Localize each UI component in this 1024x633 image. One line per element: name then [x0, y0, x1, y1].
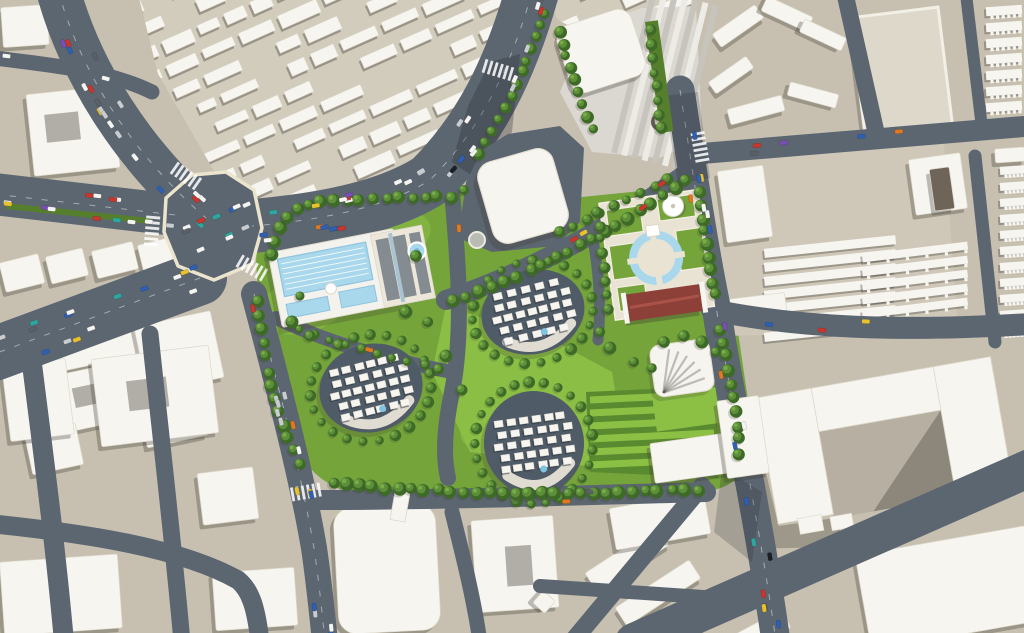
tree-highlight	[374, 351, 377, 354]
row-building	[1000, 213, 1024, 223]
tree-highlight	[528, 265, 532, 269]
fabric-building	[0, 81, 18, 99]
fabric-building	[582, 154, 621, 179]
tree-highlight	[488, 128, 491, 131]
tree-highlight	[257, 324, 261, 328]
car	[166, 223, 174, 228]
tree-highlight	[570, 75, 574, 79]
row-building-tooth	[990, 32, 993, 36]
row-building-tooth	[1007, 15, 1010, 19]
car	[750, 151, 758, 156]
row-building-tooth	[945, 266, 949, 270]
row-building-tooth	[906, 271, 910, 275]
tree-highlight	[418, 486, 422, 490]
row-building-tooth	[1002, 63, 1005, 67]
tree-highlight	[584, 216, 587, 219]
tree-highlight	[537, 488, 541, 492]
tree-highlight	[647, 26, 650, 29]
tree-highlight	[296, 460, 299, 463]
row-building-tooth	[990, 112, 993, 116]
tree-highlight	[703, 239, 707, 243]
tree-highlight	[724, 366, 728, 370]
row-building-tooth	[867, 290, 871, 294]
tree-highlight	[458, 386, 461, 389]
row-building-tooth	[990, 96, 993, 100]
tree-highlight	[460, 186, 463, 189]
cluster-building	[555, 412, 564, 420]
tree-highlight	[712, 289, 715, 292]
tree-highlight	[706, 265, 710, 269]
row-building-tooth	[1012, 286, 1015, 290]
tree-highlight	[696, 188, 700, 192]
tree-highlight	[315, 197, 319, 201]
row-building	[1000, 293, 1024, 303]
row-building-tooth	[1007, 111, 1010, 115]
tree-highlight	[716, 326, 720, 330]
row-building	[1000, 261, 1024, 271]
row-building-tooth	[1020, 285, 1023, 289]
row-building-tooth	[996, 47, 999, 51]
row-building-tooth	[1007, 79, 1010, 83]
cluster-building	[544, 413, 553, 421]
row-building-tooth	[925, 254, 929, 258]
row-building-tooth	[996, 111, 999, 115]
tree-highlight	[369, 195, 372, 198]
tree-highlight	[681, 176, 684, 179]
tree-highlight	[265, 369, 268, 372]
row-building-tooth	[1004, 174, 1007, 178]
fabric-building-shadow	[107, 2, 143, 27]
tree-highlight	[574, 88, 577, 91]
fabric-building-shadow	[84, 0, 121, 11]
row-building-tooth	[964, 292, 968, 296]
tree-highlight	[712, 348, 715, 351]
tree-highlight	[366, 481, 370, 485]
tree-highlight	[659, 191, 662, 194]
tree-highlight	[722, 350, 726, 354]
tree-highlight	[254, 297, 258, 301]
car	[47, 207, 55, 212]
row-building-tooth	[1018, 62, 1021, 66]
row-building-tooth	[1012, 302, 1015, 306]
tree-highlight	[695, 487, 699, 491]
fabric-building	[85, 0, 122, 7]
tree-highlight	[671, 183, 675, 187]
cluster-building	[525, 462, 534, 470]
road-topright-edge	[966, 0, 982, 128]
tree-highlight	[593, 208, 596, 211]
tree-highlight	[647, 41, 651, 45]
tree-highlight	[522, 58, 525, 61]
tree-highlight	[509, 92, 512, 95]
row-building-tooth	[1016, 222, 1019, 226]
scene-svg	[0, 0, 1024, 633]
tree-highlight	[602, 278, 605, 281]
tree-highlight	[699, 215, 703, 219]
row-building-tooth	[1008, 302, 1011, 306]
row-building-tooth	[1012, 238, 1015, 242]
car	[127, 219, 135, 224]
cluster-building	[537, 426, 546, 434]
car	[818, 328, 826, 333]
row-building-tooth	[1002, 95, 1005, 99]
round-planter	[469, 232, 485, 248]
tree-highlight	[266, 381, 270, 385]
row-building-tooth	[1016, 254, 1019, 258]
tree-highlight	[502, 104, 505, 107]
tree-highlight	[565, 490, 568, 493]
tree-highlight	[474, 286, 478, 290]
tree-highlight	[649, 365, 652, 368]
row-building-tooth	[1016, 302, 1019, 306]
row-building-tooth	[1002, 15, 1005, 19]
row-building-tooth	[1002, 79, 1005, 83]
row-building-tooth	[1008, 286, 1011, 290]
row-building-tooth	[996, 95, 999, 99]
row-building-tooth	[945, 294, 949, 298]
row-building-tooth	[1012, 222, 1015, 226]
row-building-tooth	[1018, 46, 1021, 50]
cluster-building	[519, 417, 528, 425]
tree-highlight	[562, 52, 565, 55]
row-building-tooth	[1012, 174, 1015, 178]
tree-highlight	[267, 250, 271, 254]
car	[2, 53, 10, 58]
tree-highlight	[404, 359, 407, 362]
crosswalk-stripe	[144, 237, 158, 241]
cluster-building	[532, 415, 541, 423]
row-building-tooth	[925, 310, 929, 314]
row-building-tooth	[1004, 302, 1007, 306]
tree-highlight	[605, 343, 609, 347]
tree-highlight	[294, 205, 298, 209]
car	[585, 490, 593, 494]
tree-highlight	[449, 296, 453, 300]
row-building-tooth	[1008, 222, 1011, 226]
car	[857, 134, 865, 139]
tree-highlight	[423, 194, 426, 197]
fabric-building-shadow	[580, 158, 619, 183]
row-building-tooth	[996, 63, 999, 67]
row-building-tooth	[990, 48, 993, 52]
rightedge-combs-top	[984, 5, 1022, 132]
car	[93, 216, 101, 221]
row-building-tooth	[1016, 238, 1019, 242]
row-building-tooth	[1013, 94, 1016, 98]
tree-highlight	[567, 64, 571, 68]
fabric-building	[0, 140, 4, 160]
cluster-building	[514, 452, 523, 460]
tree-highlight	[354, 196, 358, 200]
tree-highlight	[700, 226, 703, 229]
tree-highlight	[660, 338, 663, 341]
tree-highlight	[655, 111, 658, 114]
fabric-building-shadow	[117, 48, 159, 75]
tree-highlight	[261, 339, 264, 342]
row-building	[1000, 277, 1024, 287]
tree-highlight	[597, 235, 600, 238]
tree-highlight	[533, 33, 536, 36]
cluster-building	[563, 457, 572, 465]
row-building-tooth	[1016, 206, 1019, 210]
tree-highlight	[727, 381, 730, 384]
row-building-tooth	[1020, 205, 1023, 209]
tree-highlight	[276, 223, 280, 227]
rightedge-slab-top	[995, 147, 1024, 163]
tree-highlight	[549, 488, 553, 492]
tree-highlight	[630, 358, 633, 361]
tree-highlight	[422, 361, 425, 364]
tree-highlight	[329, 196, 333, 200]
tree-highlight	[537, 21, 540, 24]
cluster-building	[498, 431, 507, 439]
tree-highlight	[729, 393, 732, 396]
row-building-tooth	[925, 296, 929, 300]
tree-highlight	[602, 489, 606, 493]
row-building-tooth	[1013, 62, 1016, 66]
tree-highlight	[735, 434, 739, 438]
cluster-building	[547, 436, 556, 444]
row-building-tooth	[1016, 286, 1019, 290]
car	[457, 224, 462, 232]
row-building-tooth	[1004, 270, 1007, 274]
tree-highlight	[445, 488, 449, 492]
tree-highlight	[614, 488, 618, 492]
row-building	[1000, 229, 1024, 239]
cluster-building	[510, 429, 519, 437]
tree-highlight	[481, 139, 484, 142]
tree-highlight	[560, 41, 564, 45]
tree-highlight	[395, 484, 399, 488]
tree-highlight	[283, 213, 287, 217]
car	[264, 238, 272, 243]
tree-highlight	[583, 113, 587, 117]
tree-highlight	[588, 235, 591, 238]
row-building-tooth	[1004, 190, 1007, 194]
row-building-tooth	[1016, 190, 1019, 194]
row-building-tooth	[996, 31, 999, 35]
tree-highlight	[628, 487, 632, 491]
tree-highlight	[407, 484, 410, 487]
car	[85, 193, 93, 198]
tree-highlight	[261, 351, 264, 354]
row-building-tooth	[925, 282, 929, 286]
tree-highlight	[734, 423, 738, 427]
tree-highlight	[564, 249, 567, 252]
fabric-building	[0, 217, 7, 240]
tree-highlight	[732, 407, 736, 411]
car	[862, 319, 870, 323]
row-building-tooth	[990, 80, 993, 84]
cluster-building	[501, 454, 510, 462]
row-building-tooth	[867, 304, 871, 308]
tree-highlight	[697, 337, 701, 341]
plaza-pavilion	[646, 224, 660, 237]
rightedge-combs-mid	[998, 165, 1024, 338]
row-building-tooth	[1002, 31, 1005, 35]
car	[259, 232, 267, 237]
row-building-tooth	[1013, 30, 1016, 34]
row-building-tooth	[1008, 206, 1011, 210]
row-building-tooth	[906, 285, 910, 289]
cluster-building	[527, 450, 536, 458]
cluster-building	[524, 428, 533, 436]
car	[145, 219, 153, 224]
row-building-tooth	[1018, 78, 1021, 82]
row-building-tooth	[990, 16, 993, 20]
tree-highlight	[330, 479, 333, 482]
row-building-tooth	[1008, 190, 1011, 194]
row-building-tooth	[1020, 189, 1023, 193]
tree-highlight	[306, 332, 309, 335]
fabric-building	[518, 110, 543, 130]
block-southwest-3	[197, 467, 259, 525]
cluster-building	[566, 445, 575, 453]
row-building-tooth	[925, 268, 929, 272]
row-building-tooth	[1020, 237, 1023, 241]
tree-highlight	[605, 306, 608, 309]
tree-highlight	[394, 193, 398, 197]
fabric-building-shadow	[0, 84, 16, 102]
row-building-tooth	[1004, 254, 1007, 258]
row-building-tooth	[1020, 301, 1023, 305]
road-right-vertical	[975, 156, 995, 342]
row-building-tooth	[990, 64, 993, 68]
tree-highlight	[651, 70, 654, 73]
tree-highlight	[342, 479, 346, 483]
row-building-tooth	[996, 79, 999, 83]
row-building	[1000, 181, 1024, 191]
tree-highlight	[598, 249, 601, 252]
tree-highlight	[663, 175, 667, 179]
row-building-tooth	[1016, 270, 1019, 274]
tree-highlight	[327, 338, 329, 340]
cluster-building	[563, 422, 572, 430]
tree-highlight	[343, 342, 345, 344]
row-building-tooth	[1002, 47, 1005, 51]
cluster-building	[562, 434, 571, 442]
tree-highlight	[623, 197, 626, 200]
tree-highlight	[270, 394, 274, 398]
tree-highlight	[424, 318, 427, 321]
tree-highlight	[297, 293, 300, 296]
tree-highlight	[287, 317, 291, 321]
row-building-tooth	[964, 278, 968, 282]
tree-highlight	[512, 489, 516, 493]
row-building-tooth	[964, 306, 968, 310]
row-building-tooth	[1013, 78, 1016, 82]
tree-highlight	[519, 67, 522, 70]
car	[269, 210, 277, 215]
tree-highlight	[441, 351, 445, 355]
block-bottomcenter-rounded	[333, 503, 441, 633]
row-building-tooth	[1004, 206, 1007, 210]
tree-highlight	[708, 279, 712, 283]
row-building-tooth	[1004, 286, 1007, 290]
tree-highlight	[649, 54, 652, 57]
row-building-tooth	[886, 259, 890, 263]
cluster-building	[507, 442, 516, 450]
row-building-tooth	[964, 250, 968, 254]
tree-highlight	[380, 484, 384, 488]
row-building-tooth	[1013, 110, 1016, 114]
tree-highlight	[512, 273, 516, 277]
row-building-tooth	[1018, 94, 1021, 98]
fabric-building-shadow	[26, 221, 64, 246]
cluster-building	[549, 459, 558, 467]
tree-highlight	[601, 264, 604, 267]
tree-highlight	[537, 261, 540, 264]
tree-highlight	[610, 202, 613, 205]
row-building-tooth	[945, 280, 949, 284]
tree-highlight	[305, 201, 308, 204]
tree-highlight	[488, 283, 492, 287]
tree-highlight	[389, 355, 391, 357]
tree-highlight	[401, 307, 405, 311]
row-building-tooth	[1007, 95, 1010, 99]
tree-highlight	[410, 195, 413, 198]
row-building	[1000, 245, 1024, 255]
row-building-tooth	[1012, 254, 1015, 258]
cluster-building	[494, 420, 503, 428]
tree-highlight	[358, 345, 361, 348]
tree-highlight	[652, 183, 655, 186]
row-building-tooth	[1020, 269, 1023, 273]
cluster-building	[501, 466, 510, 474]
row-building-tooth	[945, 308, 949, 312]
tree-highlight	[486, 488, 490, 492]
tree-highlight	[282, 433, 286, 437]
tree-highlight	[384, 195, 387, 198]
car	[113, 218, 121, 223]
car	[776, 620, 781, 629]
row-building-tooth	[867, 276, 871, 280]
fabric-building-shadow	[0, 143, 3, 163]
row-building-tooth	[1012, 206, 1015, 210]
tree-highlight	[412, 252, 416, 256]
block-topleft-b-courtyard	[44, 111, 81, 142]
fabric-building	[108, 0, 144, 24]
tree-highlight	[653, 82, 656, 85]
tree-highlight	[604, 291, 607, 294]
tree-highlight	[590, 126, 593, 129]
row-building-tooth	[1018, 14, 1021, 18]
tree-highlight	[556, 228, 559, 231]
car	[109, 197, 117, 202]
row-building-tooth	[1016, 174, 1019, 178]
row-building-tooth	[867, 262, 871, 266]
tree-highlight	[680, 485, 684, 489]
plazablock-west-slab	[717, 165, 773, 243]
tree-highlight	[447, 193, 451, 197]
cluster-building	[552, 447, 561, 455]
row-building-tooth	[1007, 47, 1010, 51]
cluster-building	[494, 443, 503, 451]
tree-highlight	[462, 293, 465, 296]
car	[329, 624, 334, 632]
car	[753, 143, 761, 148]
tree-highlight	[499, 277, 503, 281]
row-building-tooth	[906, 257, 910, 261]
cluster-building	[549, 424, 558, 432]
tree-highlight	[596, 223, 599, 226]
tree-highlight	[556, 28, 560, 32]
row-building-tooth	[1020, 253, 1023, 257]
tree-highlight	[495, 116, 498, 119]
row-building-tooth	[1002, 111, 1005, 115]
fabric-building-shadow	[0, 221, 6, 244]
tree-highlight	[577, 489, 581, 493]
